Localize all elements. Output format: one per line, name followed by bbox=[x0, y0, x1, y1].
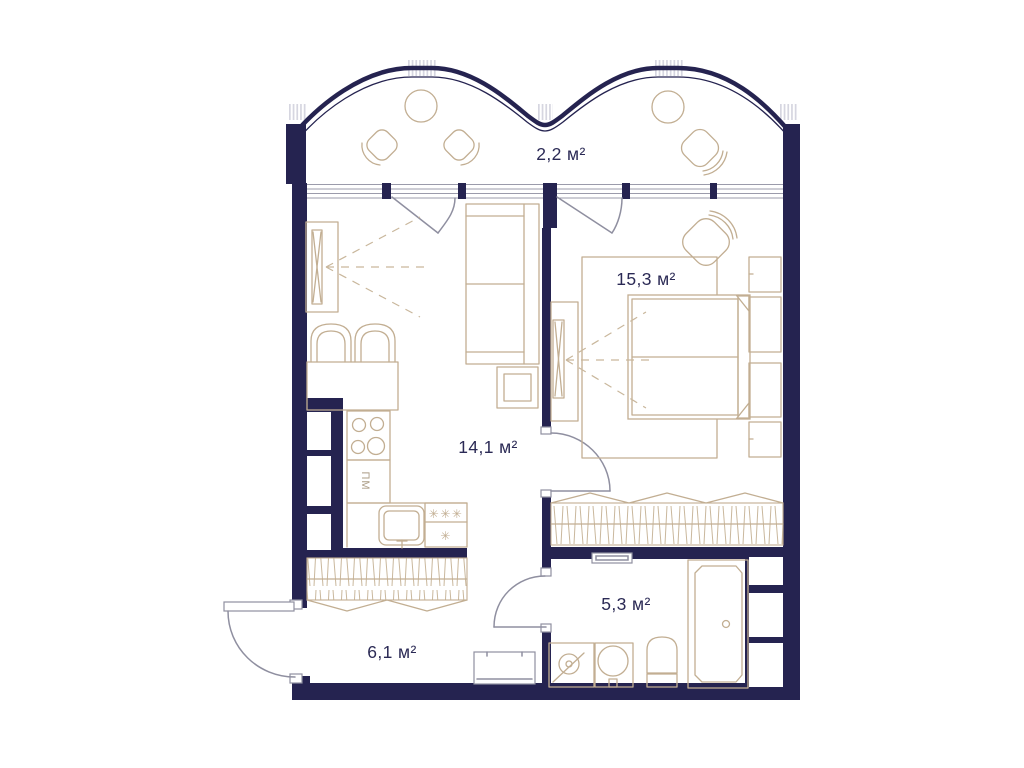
bathtub-drain bbox=[723, 621, 730, 628]
bathroom-sink-bowl bbox=[598, 646, 628, 676]
wall-left-upper bbox=[292, 183, 307, 398]
balcony-door-bedroom-leaf bbox=[557, 197, 612, 233]
bedroom-area-label: 15,3 м² bbox=[616, 269, 676, 289]
nightstand bbox=[749, 422, 781, 457]
chair-back-arc bbox=[703, 151, 723, 171]
chair-seat bbox=[441, 127, 478, 164]
chair-back-arc bbox=[461, 143, 479, 165]
entrance-door-swing bbox=[228, 611, 295, 677]
kitchen-sink-basin bbox=[384, 511, 419, 540]
bedside-cabinet bbox=[749, 297, 781, 352]
chair-back-arc bbox=[362, 143, 380, 165]
floor-plan-drawing: ПМ ✳✳✳ ✳ bbox=[0, 0, 1024, 768]
door-jamb bbox=[541, 427, 551, 434]
stove-burner bbox=[352, 441, 365, 454]
side-table bbox=[497, 367, 538, 408]
shaft-niche bbox=[749, 593, 783, 637]
door-jamb bbox=[290, 674, 302, 683]
hallway-area-label: 6,1 м² bbox=[367, 642, 416, 662]
door-jamb bbox=[541, 624, 551, 632]
balcony-chair bbox=[441, 127, 479, 165]
chair-back-arc bbox=[710, 211, 737, 238]
shaft-niche bbox=[749, 557, 783, 585]
dining-chair-inner bbox=[361, 331, 389, 362]
stove bbox=[347, 411, 390, 460]
shaft-niche bbox=[749, 643, 783, 687]
center-pier bbox=[543, 183, 557, 228]
kitchen-faucet bbox=[397, 540, 407, 548]
floor-plan-page: ПМ ✳✳✳ ✳ bbox=[0, 0, 1024, 768]
bathroom-door-swing bbox=[494, 576, 545, 627]
wardrobe-door-zigzag bbox=[551, 493, 783, 503]
wardrobe-door-zigzag bbox=[307, 600, 467, 611]
bedroom-armchair bbox=[678, 211, 737, 270]
dining-chair-inner bbox=[317, 331, 345, 362]
washing-machine-knob bbox=[566, 661, 572, 667]
wall-partition-upper bbox=[542, 228, 551, 427]
shaft-niche bbox=[307, 514, 331, 550]
nightstand bbox=[749, 257, 781, 292]
chair-back-arc bbox=[709, 215, 733, 239]
balcony-door-bedroom-swing bbox=[612, 198, 622, 233]
wall-bottom bbox=[292, 683, 800, 700]
bathroom-area-label: 5,3 м² bbox=[601, 594, 650, 614]
bedside-cabinet bbox=[749, 363, 781, 417]
fridge-star: ✳ bbox=[440, 529, 452, 543]
stove-burner bbox=[368, 438, 385, 455]
balcony-area-label: 2,2 м² bbox=[536, 144, 585, 164]
shaft-niche bbox=[307, 456, 331, 506]
window-mullion bbox=[622, 183, 630, 199]
balcony-curve-outer bbox=[296, 68, 788, 132]
balcony-table bbox=[652, 91, 684, 123]
shaft-niche bbox=[307, 412, 331, 450]
balcony-lounge-chair bbox=[677, 125, 727, 175]
washing-machine-door-line bbox=[553, 653, 584, 682]
freezer-stars: ✳✳✳ bbox=[429, 507, 464, 521]
window-mullion bbox=[710, 183, 717, 199]
bathroom-vent-grille bbox=[592, 553, 632, 563]
bathroom-fixtures bbox=[549, 553, 748, 688]
chair-seat bbox=[677, 125, 722, 170]
door-jamb bbox=[541, 568, 551, 576]
toilet-bowl bbox=[647, 637, 677, 673]
window-mullion bbox=[458, 183, 466, 199]
balcony-door-living-swing bbox=[438, 198, 455, 233]
chair-seat bbox=[364, 127, 401, 164]
balcony-chair bbox=[362, 127, 400, 165]
door-jamb bbox=[541, 490, 551, 497]
stove-burner bbox=[353, 419, 366, 432]
chair-seat bbox=[678, 214, 735, 271]
bathtub-basin bbox=[695, 566, 742, 682]
balcony-table bbox=[405, 90, 437, 122]
window-band bbox=[307, 183, 783, 228]
tv-viewing-lines bbox=[326, 217, 428, 317]
wall-balcony-left-pier bbox=[286, 124, 306, 184]
balcony-curved-wall bbox=[296, 68, 788, 138]
window-mullion bbox=[382, 183, 391, 199]
stove-burner bbox=[371, 418, 384, 431]
facade-hatch-marks bbox=[289, 68, 798, 112]
washing-machine-drum bbox=[559, 654, 579, 674]
bedroom-door-swing bbox=[551, 433, 610, 491]
bedroom-furniture bbox=[551, 211, 783, 545]
dishwasher-label: ПМ bbox=[359, 471, 371, 490]
hallway-furniture bbox=[307, 558, 535, 684]
side-table-inner bbox=[504, 374, 531, 401]
bathtub bbox=[688, 560, 748, 688]
living-kitchen-area-label: 14,1 м² bbox=[458, 437, 518, 457]
entrance-door-leaf bbox=[224, 602, 294, 611]
